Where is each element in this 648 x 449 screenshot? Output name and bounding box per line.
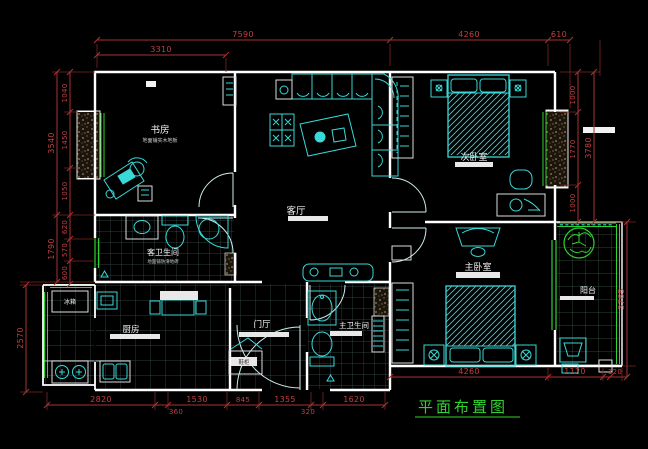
dim-bottom-2820: 2820 bbox=[90, 395, 112, 404]
study-window-icon bbox=[77, 111, 104, 179]
dim-left-3540: 3540 bbox=[47, 132, 56, 154]
master-door-icon bbox=[392, 228, 426, 262]
balcony-label-bar bbox=[560, 296, 594, 300]
living-room-label: 客厅 bbox=[286, 205, 306, 217]
dim-top-4260: 4260 bbox=[458, 30, 480, 39]
dim-bottom-4260: 4260 bbox=[458, 367, 480, 376]
dim-bottom-120: 120 bbox=[608, 368, 622, 376]
dim-bottom-1530: 1530 bbox=[186, 395, 208, 404]
bedroom2-label: 次卧室 bbox=[460, 151, 487, 163]
vent-marker bbox=[146, 81, 156, 87]
dim-bottom-1620: 1620 bbox=[343, 395, 365, 404]
cad-viewport: 7590 3310 4260 610 3540 1790 2570 1040 1… bbox=[0, 0, 648, 449]
dim-bottom-1120: 1120 bbox=[564, 367, 586, 376]
dim-left-2570: 2570 bbox=[16, 327, 25, 349]
dim-right-1000a: 1000 bbox=[569, 85, 577, 104]
drawing-title: 平面布置图 bbox=[418, 398, 508, 416]
dresser-icon bbox=[456, 228, 500, 257]
bedroom2-desk-icon bbox=[497, 170, 545, 216]
dim-top-610: 610 bbox=[551, 30, 567, 39]
floorplan-canvas[interactable]: 7590 3310 4260 610 3540 1790 2570 1040 1… bbox=[0, 0, 648, 449]
entry-label: 门厅 bbox=[253, 319, 271, 330]
dim-bottom-320: 320 bbox=[301, 408, 315, 416]
guest-bath-label: 客卫生间 bbox=[147, 247, 179, 257]
dim-right-1770: 1770 bbox=[569, 139, 577, 158]
dining-table-icon bbox=[270, 114, 294, 146]
bedroom2-bed-icon bbox=[448, 75, 509, 157]
study-door-icon bbox=[199, 173, 233, 207]
balcony-label: 阳台 bbox=[580, 285, 596, 295]
dim-top-3310: 3310 bbox=[150, 45, 172, 54]
dim-left-1450: 1450 bbox=[61, 130, 69, 149]
master-bath-label: 主卫生间 bbox=[339, 320, 369, 330]
study-room-label: 书房 bbox=[150, 124, 169, 136]
master-bedroom-label: 主卧室 bbox=[464, 261, 491, 273]
master-wardrobe-icon bbox=[392, 246, 413, 363]
dim-right-3765: 3765 bbox=[617, 288, 626, 310]
dim-left-1040: 1040 bbox=[61, 83, 69, 102]
kitchen-label: 厨房 bbox=[122, 324, 139, 335]
dim-top-7590: 7590 bbox=[232, 30, 254, 39]
tv-cabinet-icon bbox=[303, 264, 373, 281]
master-bath-label-bar bbox=[330, 331, 362, 336]
dim-left-1790: 1790 bbox=[47, 238, 56, 260]
table-label-bar bbox=[160, 291, 198, 300]
dim-left-1050: 1050 bbox=[61, 181, 69, 200]
dim-bottom-1355: 1355 bbox=[274, 395, 296, 404]
sofa-icon bbox=[292, 74, 398, 176]
dim-bottom-360: 360 bbox=[169, 408, 183, 416]
dim-left-620: 620 bbox=[61, 220, 69, 234]
drawing-title-block: 平面布置图 bbox=[415, 398, 520, 417]
dim-right-1000b: 1000 bbox=[569, 193, 577, 212]
bedroom2-window-icon bbox=[543, 110, 568, 188]
dim-left-570: 570 bbox=[61, 243, 69, 257]
coffee-table-icon bbox=[300, 114, 356, 156]
duct-shaft-icon bbox=[374, 288, 389, 316]
master-balcony-window-icon bbox=[552, 240, 556, 330]
dim-right-3780: 3780 bbox=[584, 137, 593, 159]
master-bed-icon bbox=[446, 286, 515, 366]
entry-label-bar bbox=[239, 332, 289, 337]
guest-bath-note: 地面铺防滑地砖 bbox=[147, 258, 179, 265]
study-desk-icon bbox=[104, 158, 152, 201]
bedroom2-wardrobe-icon bbox=[392, 77, 413, 158]
dim-left-600: 600 bbox=[61, 266, 69, 280]
shoe-cabinet-label: 鞋柜 bbox=[238, 358, 250, 366]
side-table-icon bbox=[276, 80, 292, 99]
bedroom2-door-icon bbox=[392, 178, 426, 212]
study-room-note: 地面铺实木地板 bbox=[142, 137, 177, 144]
fridge-label: 冰箱 bbox=[64, 298, 76, 306]
dim-bottom-845: 845 bbox=[236, 396, 250, 404]
beam-marker bbox=[583, 127, 615, 133]
